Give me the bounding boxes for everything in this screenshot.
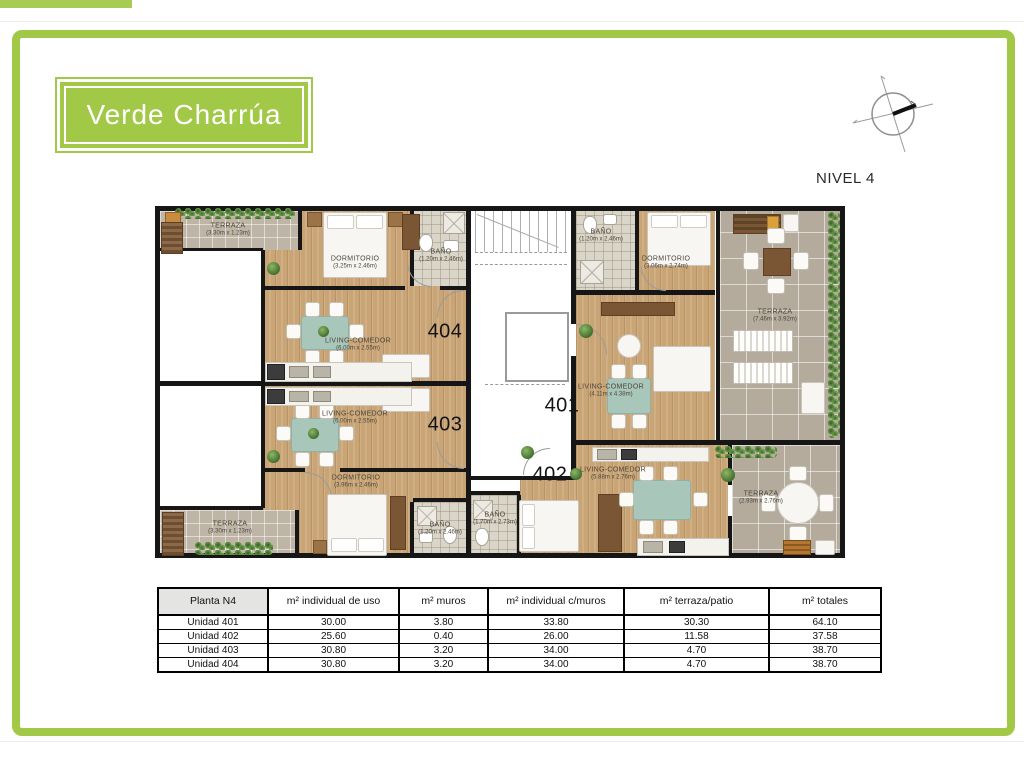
landing-dashed-line — [485, 384, 565, 385]
wall — [576, 290, 715, 295]
cell: 3.20 — [399, 658, 488, 673]
chair — [639, 520, 654, 535]
grill — [783, 540, 811, 555]
wall — [263, 286, 405, 290]
label-terraza-401: TERRAZA (7.46m x 3.92m) — [753, 308, 797, 325]
chair — [329, 302, 344, 317]
tv-cabinet — [601, 302, 675, 316]
plant — [521, 446, 534, 459]
pillow — [356, 215, 383, 229]
cell: 30.80 — [268, 644, 399, 658]
cell: 26.00 — [488, 630, 624, 644]
wall — [160, 506, 263, 510]
nightstand — [307, 212, 322, 227]
wall — [576, 440, 845, 445]
label-terraza-402: TERRAZA (2.93m x 2.76m) — [739, 490, 783, 507]
chair — [743, 252, 759, 270]
chair — [295, 452, 310, 467]
cell: 4.70 — [624, 658, 769, 673]
planter-box — [801, 382, 825, 414]
chair — [632, 364, 647, 379]
label-living-403: LIVING-COMEDOR (6.00m x 2.55m) — [322, 410, 388, 427]
cell: 25.60 — [268, 630, 399, 644]
page-top-hairline — [0, 21, 1024, 22]
cell: 30.30 — [624, 615, 769, 630]
unit-number-402: 402 — [533, 464, 568, 487]
plant — [721, 468, 735, 482]
cell: 30.80 — [268, 658, 399, 673]
pillow — [522, 504, 535, 526]
wardrobe — [402, 214, 420, 250]
wall — [716, 206, 720, 440]
terrace-table-401 — [763, 248, 791, 276]
chair — [305, 302, 320, 317]
sink — [289, 366, 309, 378]
wall — [263, 468, 305, 472]
unit-number-403: 403 — [428, 414, 463, 437]
level-label: NIVEL 4 — [816, 170, 875, 187]
page: Verde Charrúa NIVEL 4 — [0, 0, 1024, 768]
chair — [789, 526, 807, 541]
sink — [289, 391, 309, 402]
chair — [793, 252, 809, 270]
label-bano-402: BAÑO (1.70m x 2.73m) — [473, 511, 517, 528]
cell: Unidad 404 — [158, 658, 268, 673]
counter — [597, 449, 617, 460]
stairs-dashed-line — [475, 252, 567, 253]
wall — [340, 468, 466, 472]
sink — [643, 541, 663, 553]
cell: 11.58 — [624, 630, 769, 644]
unit-number-404: 404 — [428, 321, 463, 344]
pillow — [651, 215, 678, 228]
col-header-planta: Planta N4 — [158, 588, 268, 615]
stove — [267, 364, 285, 380]
cell: Unidad 403 — [158, 644, 268, 658]
col-header-terraza: m² terraza/patio — [624, 588, 769, 615]
sink — [603, 214, 617, 225]
storage-louver — [162, 512, 184, 556]
chair — [819, 494, 834, 512]
hedge — [828, 212, 840, 438]
col-header-uso: m² individual de uso — [268, 588, 399, 615]
nightstand — [313, 540, 327, 554]
storage-louver — [161, 222, 183, 254]
cell: 3.80 — [399, 615, 488, 630]
lounge-chair — [733, 330, 793, 352]
wall — [410, 502, 414, 558]
cell: 3.20 — [399, 644, 488, 658]
pillow — [358, 538, 384, 552]
cell: 34.00 — [488, 658, 624, 673]
plant — [318, 326, 329, 337]
sofa-401 — [653, 346, 711, 392]
counter — [313, 391, 331, 402]
green-edge-artifact — [0, 0, 132, 8]
side-table — [815, 540, 835, 555]
void-area-lower — [160, 390, 261, 506]
wall — [635, 206, 639, 290]
table-row-unidad-401: Unidad 401 30.00 3.80 33.80 30.30 64.10 — [158, 615, 881, 630]
label-living-404: LIVING-COMEDOR (6.00m x 2.55m) — [325, 337, 391, 354]
chair — [339, 426, 354, 441]
void-area-upper — [160, 252, 261, 381]
chair — [789, 466, 807, 481]
plant — [267, 450, 280, 463]
chair — [693, 492, 708, 507]
areas-table: Planta N4 m² individual de uso m² muros … — [157, 587, 882, 673]
side-table — [783, 214, 799, 232]
stove — [669, 541, 685, 553]
areas-table-header-row: Planta N4 m² individual de uso m² muros … — [158, 588, 881, 615]
wardrobe — [390, 496, 406, 550]
round-table-402 — [777, 482, 819, 524]
pillow — [331, 538, 357, 552]
toilet — [475, 528, 489, 546]
chair — [286, 324, 301, 339]
table-row-unidad-404: Unidad 404 30.80 3.20 34.00 4.70 38.70 — [158, 658, 881, 673]
table-row-unidad-402: Unidad 402 25.60 0.40 26.00 11.58 37.58 — [158, 630, 881, 644]
wall — [471, 491, 520, 495]
chair — [619, 492, 634, 507]
wall — [571, 206, 576, 324]
page-bottom-hairline — [0, 741, 1024, 742]
label-bano-404: BAÑO (1.20m x 2.46m) — [419, 248, 463, 265]
floor-plan: TERRAZA (3.30m x 1.23m) DORMITORIO (3.25… — [155, 206, 845, 558]
plant — [308, 428, 319, 439]
label-bano-403: BAÑO (1.20m x 2.46m) — [418, 521, 462, 538]
dining-table-402 — [633, 480, 691, 520]
label-living-402: LIVING-COMEDOR (5.88m x 2.76m) — [580, 466, 646, 483]
pillow — [522, 527, 535, 549]
shower — [443, 212, 465, 234]
cell: 30.00 — [268, 615, 399, 630]
stove — [267, 389, 285, 404]
wall — [298, 211, 302, 250]
chair — [767, 228, 785, 244]
cell: 37.58 — [769, 630, 881, 644]
chair — [663, 520, 678, 535]
label-dormitorio-401: DORMITORIO (3.06m x 2.74m) — [642, 255, 690, 272]
col-header-cmuros: m² individual c/muros — [488, 588, 624, 615]
unit-number-401: 401 — [545, 395, 580, 418]
wall — [413, 498, 466, 502]
nightstand — [388, 212, 403, 227]
lounge-chair — [733, 362, 793, 384]
chair — [611, 364, 626, 379]
hedge — [195, 542, 273, 555]
counter — [313, 366, 331, 378]
label-living-401: LIVING-COMEDOR (4.11m x 4.38m) — [578, 383, 644, 400]
label-terraza-404: TERRAZA (3.30m x 1.23m) — [206, 222, 250, 239]
chair — [767, 278, 785, 294]
wall — [295, 510, 299, 558]
stove — [621, 449, 637, 460]
plant — [579, 324, 593, 338]
stairs-dashed-line — [475, 264, 567, 265]
plant — [267, 262, 280, 275]
compass-north-icon — [847, 68, 939, 160]
cell: Unidad 401 — [158, 615, 268, 630]
col-header-muros: m² muros — [399, 588, 488, 615]
cell: 38.70 — [769, 644, 881, 658]
brand-logo-text: Verde Charrúa — [86, 99, 281, 131]
cell: 33.80 — [488, 615, 624, 630]
label-dormitorio-404: DORMITORIO (3.25m x 2.46m) — [331, 255, 379, 272]
armchair — [617, 334, 641, 358]
hedge — [175, 208, 295, 219]
hedge — [715, 446, 777, 458]
wall — [840, 206, 845, 558]
shower — [580, 260, 604, 284]
label-dormitorio-403: DORMITORIO (3.96m x 2.46m) — [332, 474, 380, 491]
elevator-shaft — [505, 312, 569, 382]
pillow — [680, 215, 707, 228]
cell: 38.70 — [769, 658, 881, 673]
chair — [632, 414, 647, 429]
cell: 0.40 — [399, 630, 488, 644]
chair — [295, 404, 310, 419]
brand-logo: Verde Charrúa — [55, 77, 313, 153]
kitchen-404 — [265, 362, 412, 382]
chair — [276, 426, 291, 441]
cell: 34.00 — [488, 644, 624, 658]
col-header-totales: m² totales — [769, 588, 881, 615]
pillow — [327, 215, 354, 229]
kitchen-403 — [265, 387, 412, 406]
label-bano-401: BAÑO (1.20m x 2.46m) — [579, 228, 623, 245]
cell: Unidad 402 — [158, 630, 268, 644]
cell: 64.10 — [769, 615, 881, 630]
chair — [663, 466, 678, 481]
brand-logo-box: Verde Charrúa — [60, 82, 308, 148]
table-row-unidad-403: Unidad 403 30.80 3.20 34.00 4.70 38.70 — [158, 644, 881, 658]
cell: 4.70 — [624, 644, 769, 658]
chair — [319, 452, 334, 467]
label-terraza-403: TERRAZA (3.30m x 1.23m) — [208, 520, 252, 537]
chair — [611, 414, 626, 429]
